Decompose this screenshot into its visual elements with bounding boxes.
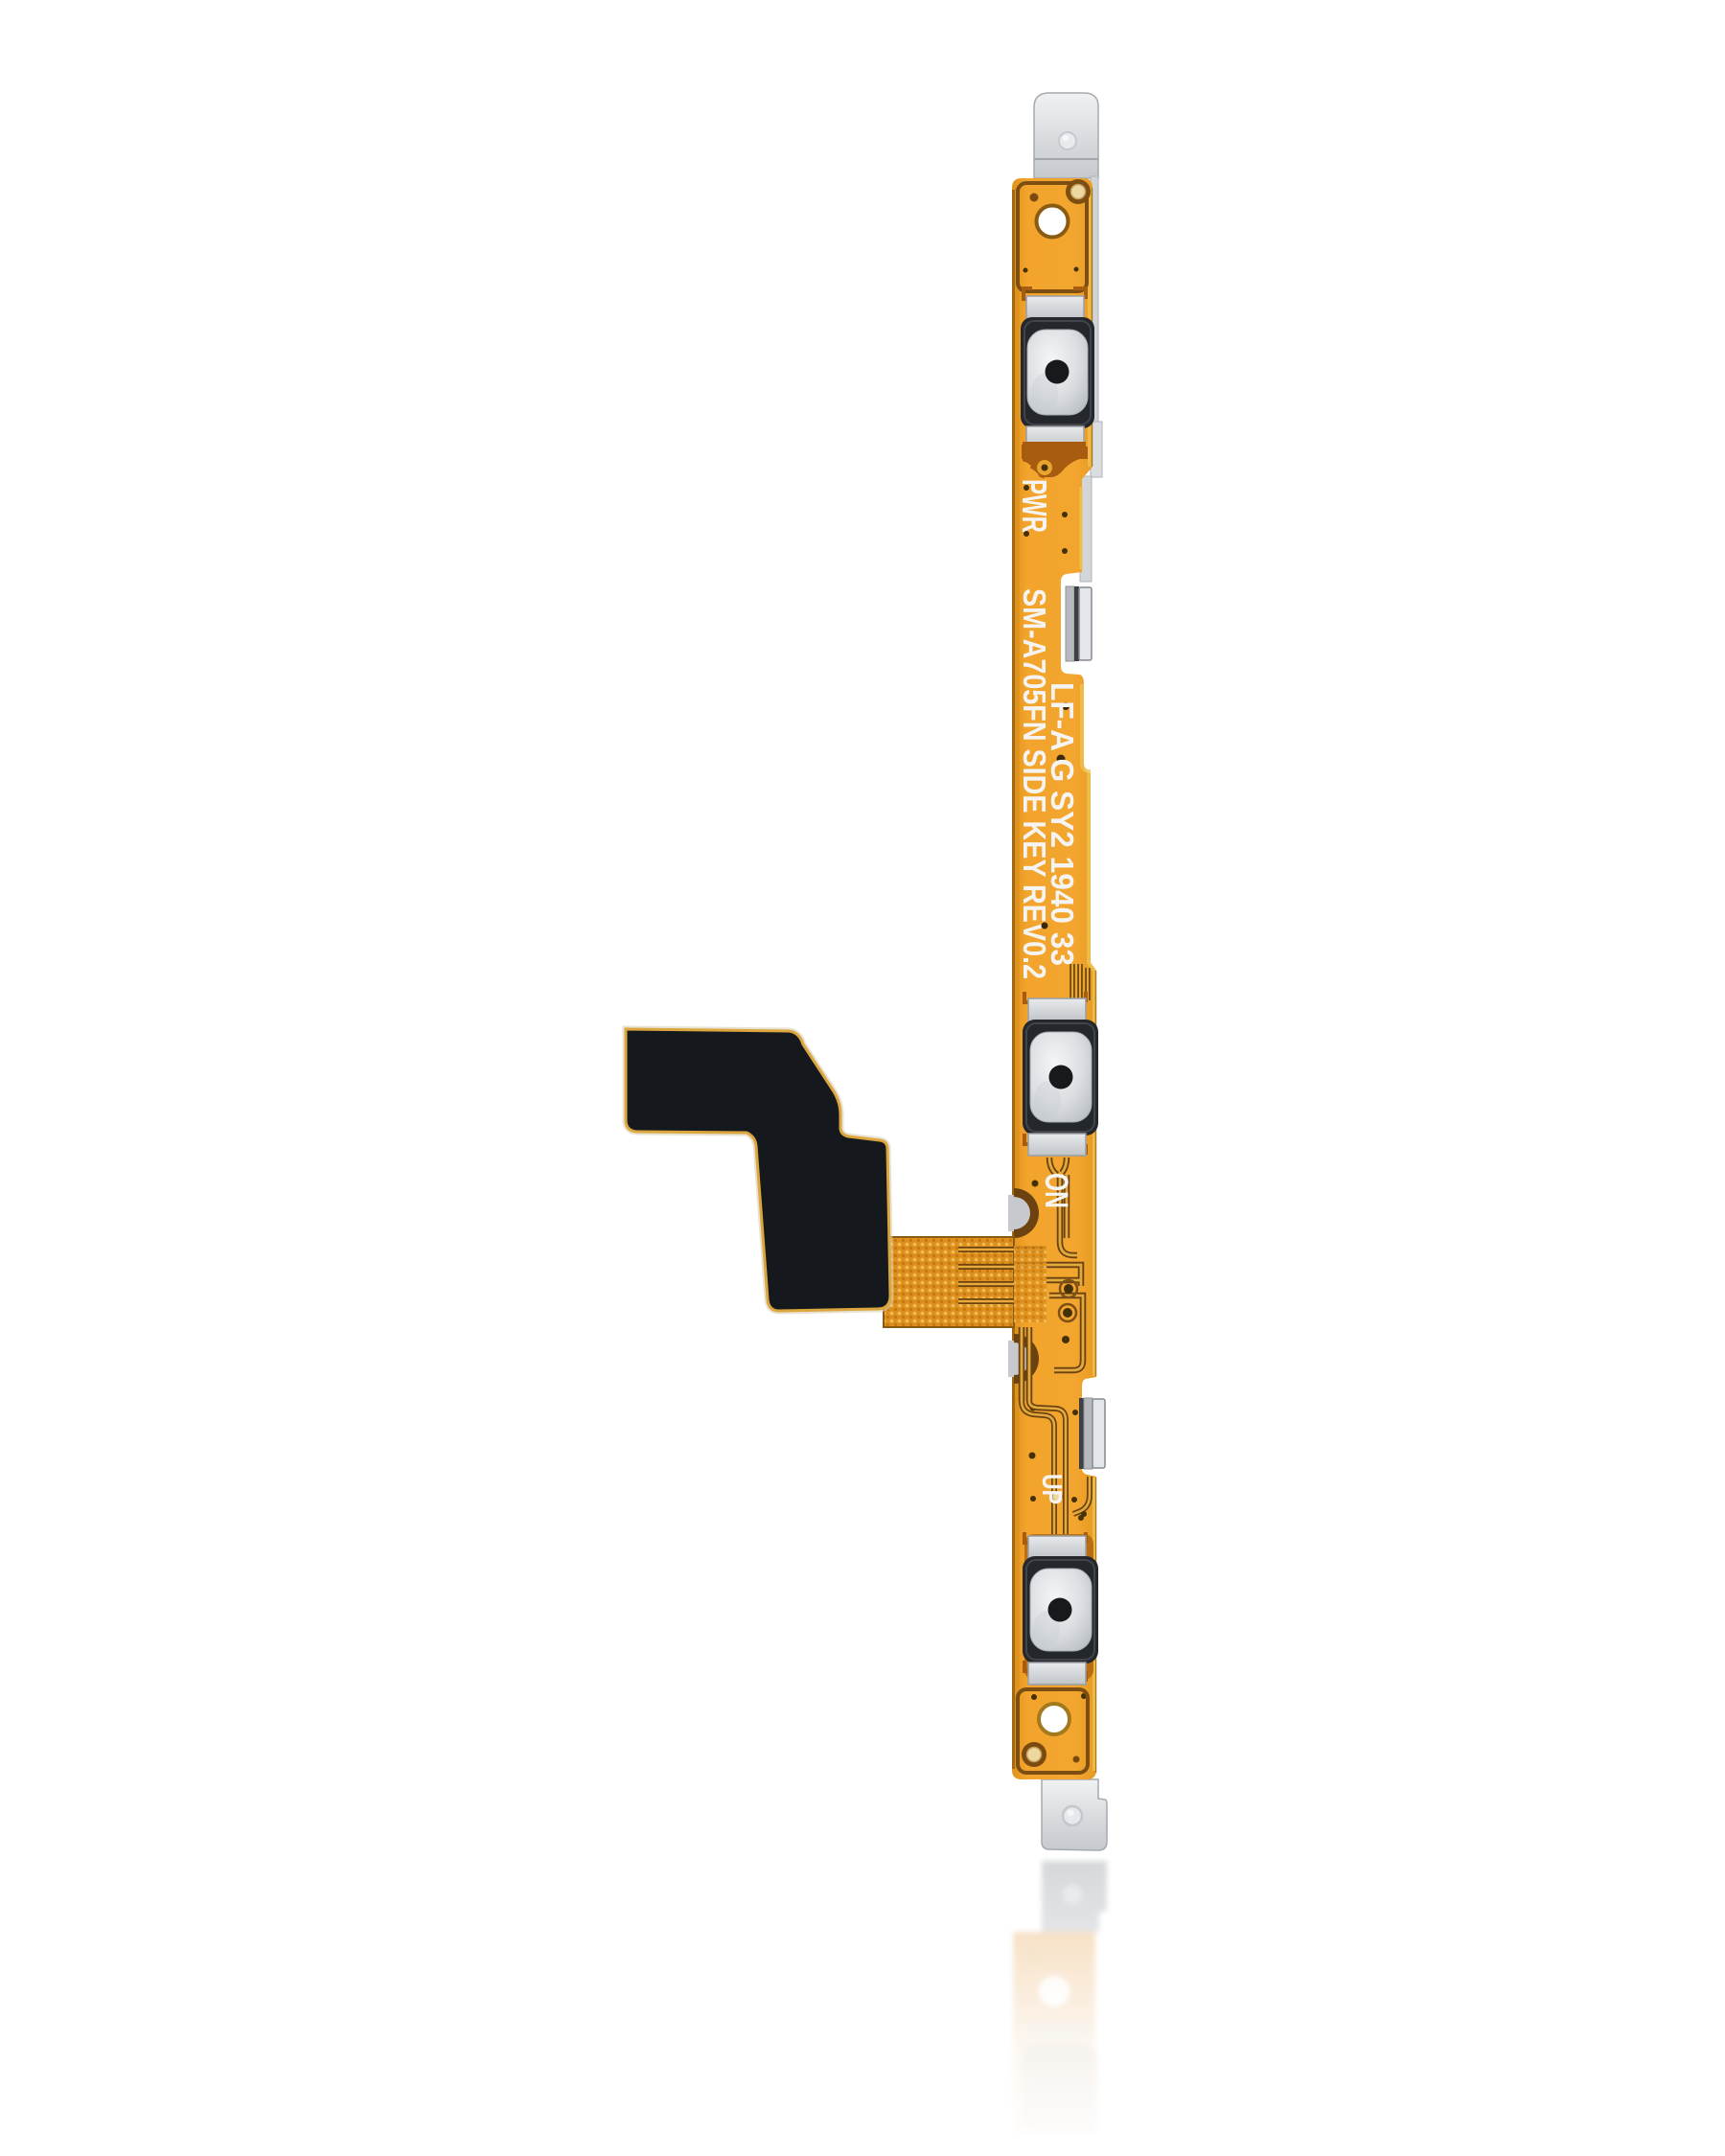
svg-text:PWR: PWR [1015, 479, 1054, 533]
svg-text:UP: UP [1036, 1474, 1067, 1504]
svg-text:ON: ON [1038, 1173, 1074, 1208]
svg-text:LF-A G SY2 1940 33: LF-A G SY2 1940 33 [1045, 682, 1080, 966]
